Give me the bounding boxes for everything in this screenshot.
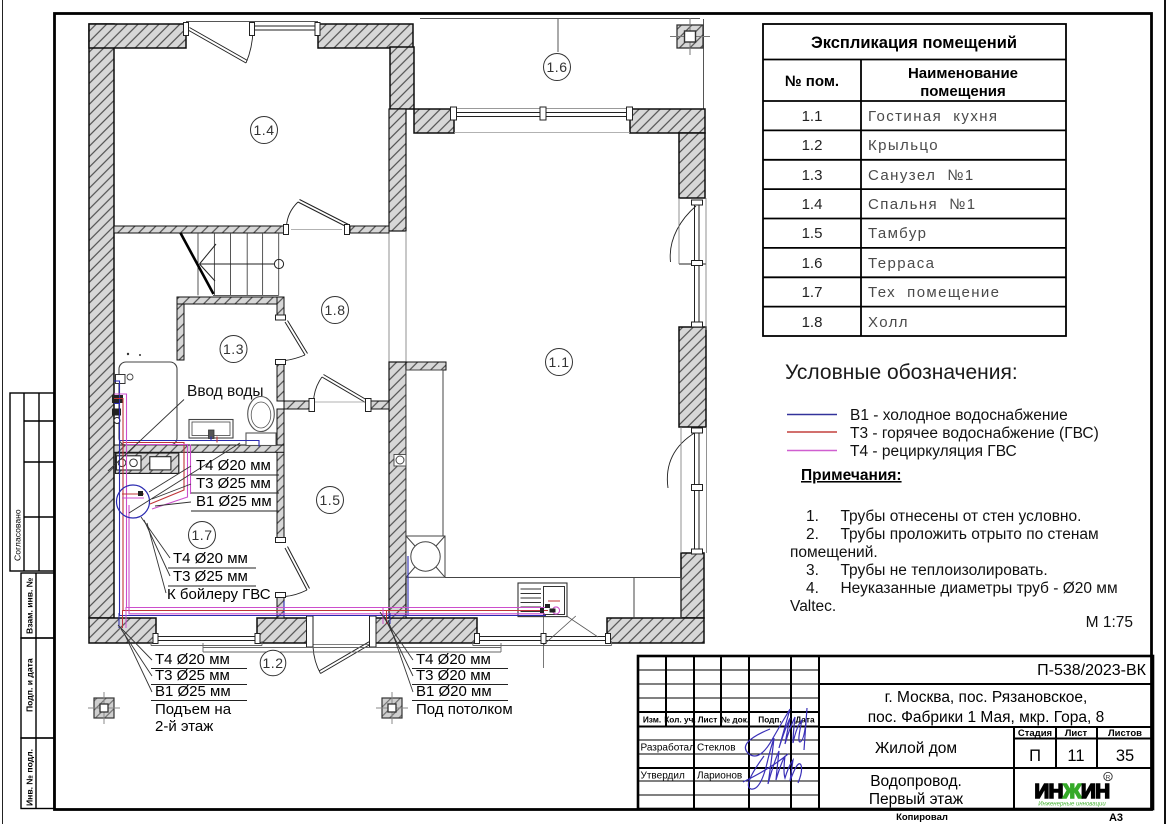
svg-text:Т3 Ø20 мм: Т3 Ø20 мм	[416, 667, 491, 684]
svg-text:В1 - холодное водоснабжение: В1 - холодное водоснабжение	[850, 407, 1068, 424]
svg-text:Т3 Ø25 мм: Т3 Ø25 мм	[196, 475, 271, 492]
svg-text:Т4 - рециркуляция ГВС: Т4 - рециркуляция ГВС	[850, 443, 1017, 460]
svg-text:1.2: 1.2	[802, 137, 823, 154]
svg-text:Примечания:: Примечания:	[801, 467, 902, 484]
svg-text:Тех помещение: Тех помещение	[868, 284, 1000, 301]
svg-text:Стадия: Стадия	[1018, 728, 1052, 739]
svg-text:Подп.: Подп.	[758, 715, 782, 725]
svg-text:1.3: 1.3	[223, 341, 244, 357]
svg-text:Экспликация помещений: Экспликация помещений	[811, 34, 1017, 52]
svg-text:Т3 Ø25 мм: Т3 Ø25 мм	[173, 568, 248, 585]
svg-text:1.4: 1.4	[802, 196, 823, 213]
svg-text:1. Трубы отнесены от стен: 1. Трубы отнесены от стен условно.	[806, 508, 1081, 525]
svg-text:помещения: помещения	[920, 83, 1006, 100]
svg-text:Согласовано: Согласовано	[13, 509, 23, 561]
svg-text:г. Москва, пос. Рязановское,: г. Москва, пос. Рязановское,	[885, 689, 1088, 706]
svg-text:1.6: 1.6	[802, 255, 823, 272]
svg-text:Т4 Ø20 мм: Т4 Ø20 мм	[173, 550, 248, 567]
svg-text:1.1: 1.1	[802, 108, 823, 125]
svg-text:Разработал: Разработал	[641, 742, 696, 754]
svg-text:1.3: 1.3	[802, 167, 823, 184]
svg-text:Листов: Листов	[1108, 728, 1142, 739]
svg-text:1.8: 1.8	[325, 302, 346, 318]
svg-text:11: 11	[1067, 747, 1084, 765]
svg-text:Инв. № подл.: Инв. № подл.	[25, 749, 35, 806]
svg-text:А3: А3	[1109, 812, 1123, 824]
svg-text:Изм.: Изм.	[643, 715, 661, 725]
svg-text:К бойлеру ГВС: К бойлеру ГВС	[167, 586, 271, 603]
svg-text:Спальня №1: Спальня №1	[868, 196, 976, 213]
svg-text:№ док.: № док.	[721, 715, 749, 725]
svg-text:Т4 Ø20 мм: Т4 Ø20 мм	[155, 651, 230, 668]
svg-text:R: R	[1106, 775, 1111, 782]
svg-text:Жилой дом: Жилой дом	[875, 740, 957, 757]
svg-text:Т4 Ø20 мм: Т4 Ø20 мм	[196, 457, 271, 474]
svg-text:1.8: 1.8	[802, 314, 823, 331]
svg-text:Т3 Ø25 мм: Т3 Ø25 мм	[155, 667, 230, 684]
svg-text:1.6: 1.6	[547, 59, 568, 75]
svg-text:2. Трубы проложить отрыто: 2. Трубы проложить отрыто по стенам	[806, 526, 1099, 543]
svg-text:Наименование: Наименование	[908, 65, 1018, 82]
svg-text:Т4 Ø20 мм: Т4 Ø20 мм	[416, 651, 491, 668]
svg-text:Valtec.: Valtec.	[790, 598, 836, 615]
svg-text:В1 Ø20 мм: В1 Ø20 мм	[416, 683, 492, 700]
svg-text:4. Неуказанные диаметры тр: 4. Неуказанные диаметры труб - Ø20 мм	[806, 580, 1118, 597]
svg-text:№ пом.: № пом.	[785, 73, 839, 90]
svg-text:Т3 - горячее водоснабжение (ГВ: Т3 - горячее водоснабжение (ГВС)	[850, 425, 1099, 442]
svg-text:1.7: 1.7	[192, 527, 213, 543]
svg-text:Ларионов: Ларионов	[697, 771, 742, 782]
svg-text:Под потолком: Под потолком	[416, 701, 513, 718]
svg-text:1.5: 1.5	[320, 492, 341, 508]
svg-text:В1 Ø25 мм: В1 Ø25 мм	[196, 493, 272, 510]
svg-text:П: П	[1029, 747, 1041, 765]
svg-text:Первый этаж: Первый этаж	[869, 791, 964, 808]
svg-text:1.7: 1.7	[802, 284, 823, 301]
svg-text:Утвердил: Утвердил	[641, 771, 685, 782]
svg-text:1.2: 1.2	[263, 655, 284, 671]
svg-text:Копировал: Копировал	[896, 812, 948, 823]
svg-text:помещений.: помещений.	[790, 544, 878, 561]
svg-text:Тамбур: Тамбур	[868, 225, 927, 242]
svg-text:Условные обозначения:: Условные обозначения:	[785, 361, 1018, 384]
svg-text:Инженерные инновации: Инженерные инновации	[1038, 802, 1106, 808]
svg-text:35: 35	[1116, 747, 1134, 765]
svg-text:Лист: Лист	[698, 715, 718, 725]
svg-text:3. Трубы не теплоизолирова: 3. Трубы не теплоизолировать.	[806, 562, 1048, 579]
svg-text:Холл: Холл	[868, 314, 909, 331]
svg-text:2-й этаж: 2-й этаж	[155, 718, 213, 735]
svg-text:Взам. инв. №: Взам. инв. №	[25, 577, 35, 634]
svg-text:В1 Ø25 мм: В1 Ø25 мм	[155, 683, 231, 700]
svg-text:П-538/2023-ВК: П-538/2023-ВК	[1037, 662, 1147, 679]
svg-text:1.1: 1.1	[549, 354, 570, 370]
svg-text:Кол. уч.: Кол. уч.	[664, 715, 696, 725]
svg-text:Ввод воды: Ввод воды	[187, 383, 264, 400]
svg-text:ИНЖИН: ИНЖИН	[1034, 780, 1109, 803]
svg-text:Подп. и дата: Подп. и дата	[25, 658, 35, 712]
svg-text:М 1:75: М 1:75	[1086, 614, 1133, 631]
svg-text:пос. Фабрики 1 Мая, мкр. Гора,: пос. Фабрики 1 Мая, мкр. Гора, 8	[868, 709, 1104, 726]
svg-text:Терраса: Терраса	[868, 255, 935, 272]
svg-text:Крыльцо: Крыльцо	[868, 137, 939, 154]
svg-text:1.4: 1.4	[254, 122, 275, 138]
svg-text:Стеклов: Стеклов	[697, 743, 736, 754]
svg-text:Гостиная кухня: Гостиная кухня	[868, 108, 998, 125]
svg-text:1.5: 1.5	[802, 225, 823, 242]
svg-text:Подъем на: Подъем на	[155, 701, 232, 718]
svg-text:Санузел №1: Санузел №1	[868, 167, 975, 184]
svg-text:Лист: Лист	[1065, 728, 1088, 739]
svg-text:Водопровод.: Водопровод.	[870, 773, 962, 790]
